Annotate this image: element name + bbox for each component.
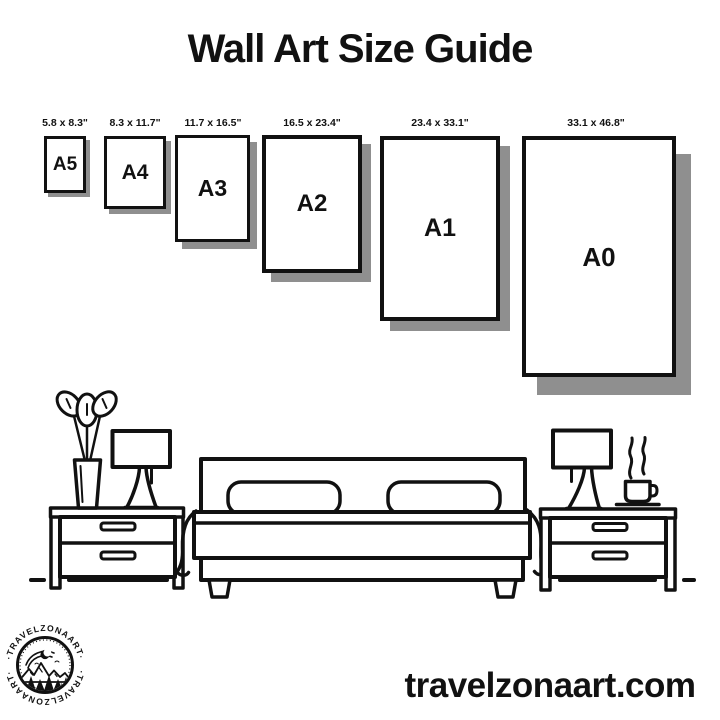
drawer-handle <box>101 552 135 559</box>
frame-a4-label: A4 <box>122 162 149 183</box>
pillow-right <box>388 482 500 514</box>
bed <box>177 459 547 597</box>
bed-leg <box>495 580 516 597</box>
logo-badge: ·TRAVELZONAART· ·TRAVELZONAART· <box>3 620 89 710</box>
drawer-handle <box>101 523 135 530</box>
size-label-a3: 11.7 x 16.5" <box>185 117 242 129</box>
right-nightstand <box>541 509 676 590</box>
steam-icon <box>643 438 645 475</box>
right-lamp-icon <box>553 431 611 509</box>
pillow-left <box>228 482 340 514</box>
frame-a3-label: A3 <box>198 177 227 200</box>
frame-a0: A0 <box>522 136 676 377</box>
size-label-a0: 33.1 x 46.8" <box>567 117 625 129</box>
frame-a1-label: A1 <box>424 216 456 241</box>
size-label-a5: 5.8 x 8.3" <box>42 117 88 129</box>
frame-a0-label: A0 <box>582 244 615 270</box>
bed-leg <box>209 580 230 597</box>
mattress <box>194 512 530 558</box>
frame-a5: A5 <box>44 136 86 193</box>
frame-a3: A3 <box>175 135 250 242</box>
size-label-a2: 16.5 x 23.4" <box>283 117 341 129</box>
drawer-handle <box>593 552 627 559</box>
frame-a1: A1 <box>380 136 500 321</box>
bed-base <box>201 558 523 580</box>
size-guide-poster: Wall Art Size Guide 5.8 x 8.3" 8.3 x 11.… <box>0 0 720 720</box>
size-label-a1: 23.4 x 33.1" <box>411 117 469 129</box>
steam-icon <box>630 438 633 478</box>
drawer-handle <box>593 524 627 531</box>
page-title: Wall Art Size Guide <box>0 27 720 72</box>
size-label-a4: 8.3 x 11.7" <box>109 117 160 129</box>
frame-a4: A4 <box>104 136 166 209</box>
bedroom-illustration <box>0 378 720 608</box>
left-lamp-icon <box>113 431 171 508</box>
frame-a2: A2 <box>262 135 362 273</box>
website-url: travelzonaart.com <box>400 666 700 706</box>
frame-a2-label: A2 <box>297 192 328 216</box>
frame-a5-label: A5 <box>53 155 77 174</box>
left-nightstand <box>51 508 184 588</box>
coffee-cup-icon <box>617 438 660 505</box>
